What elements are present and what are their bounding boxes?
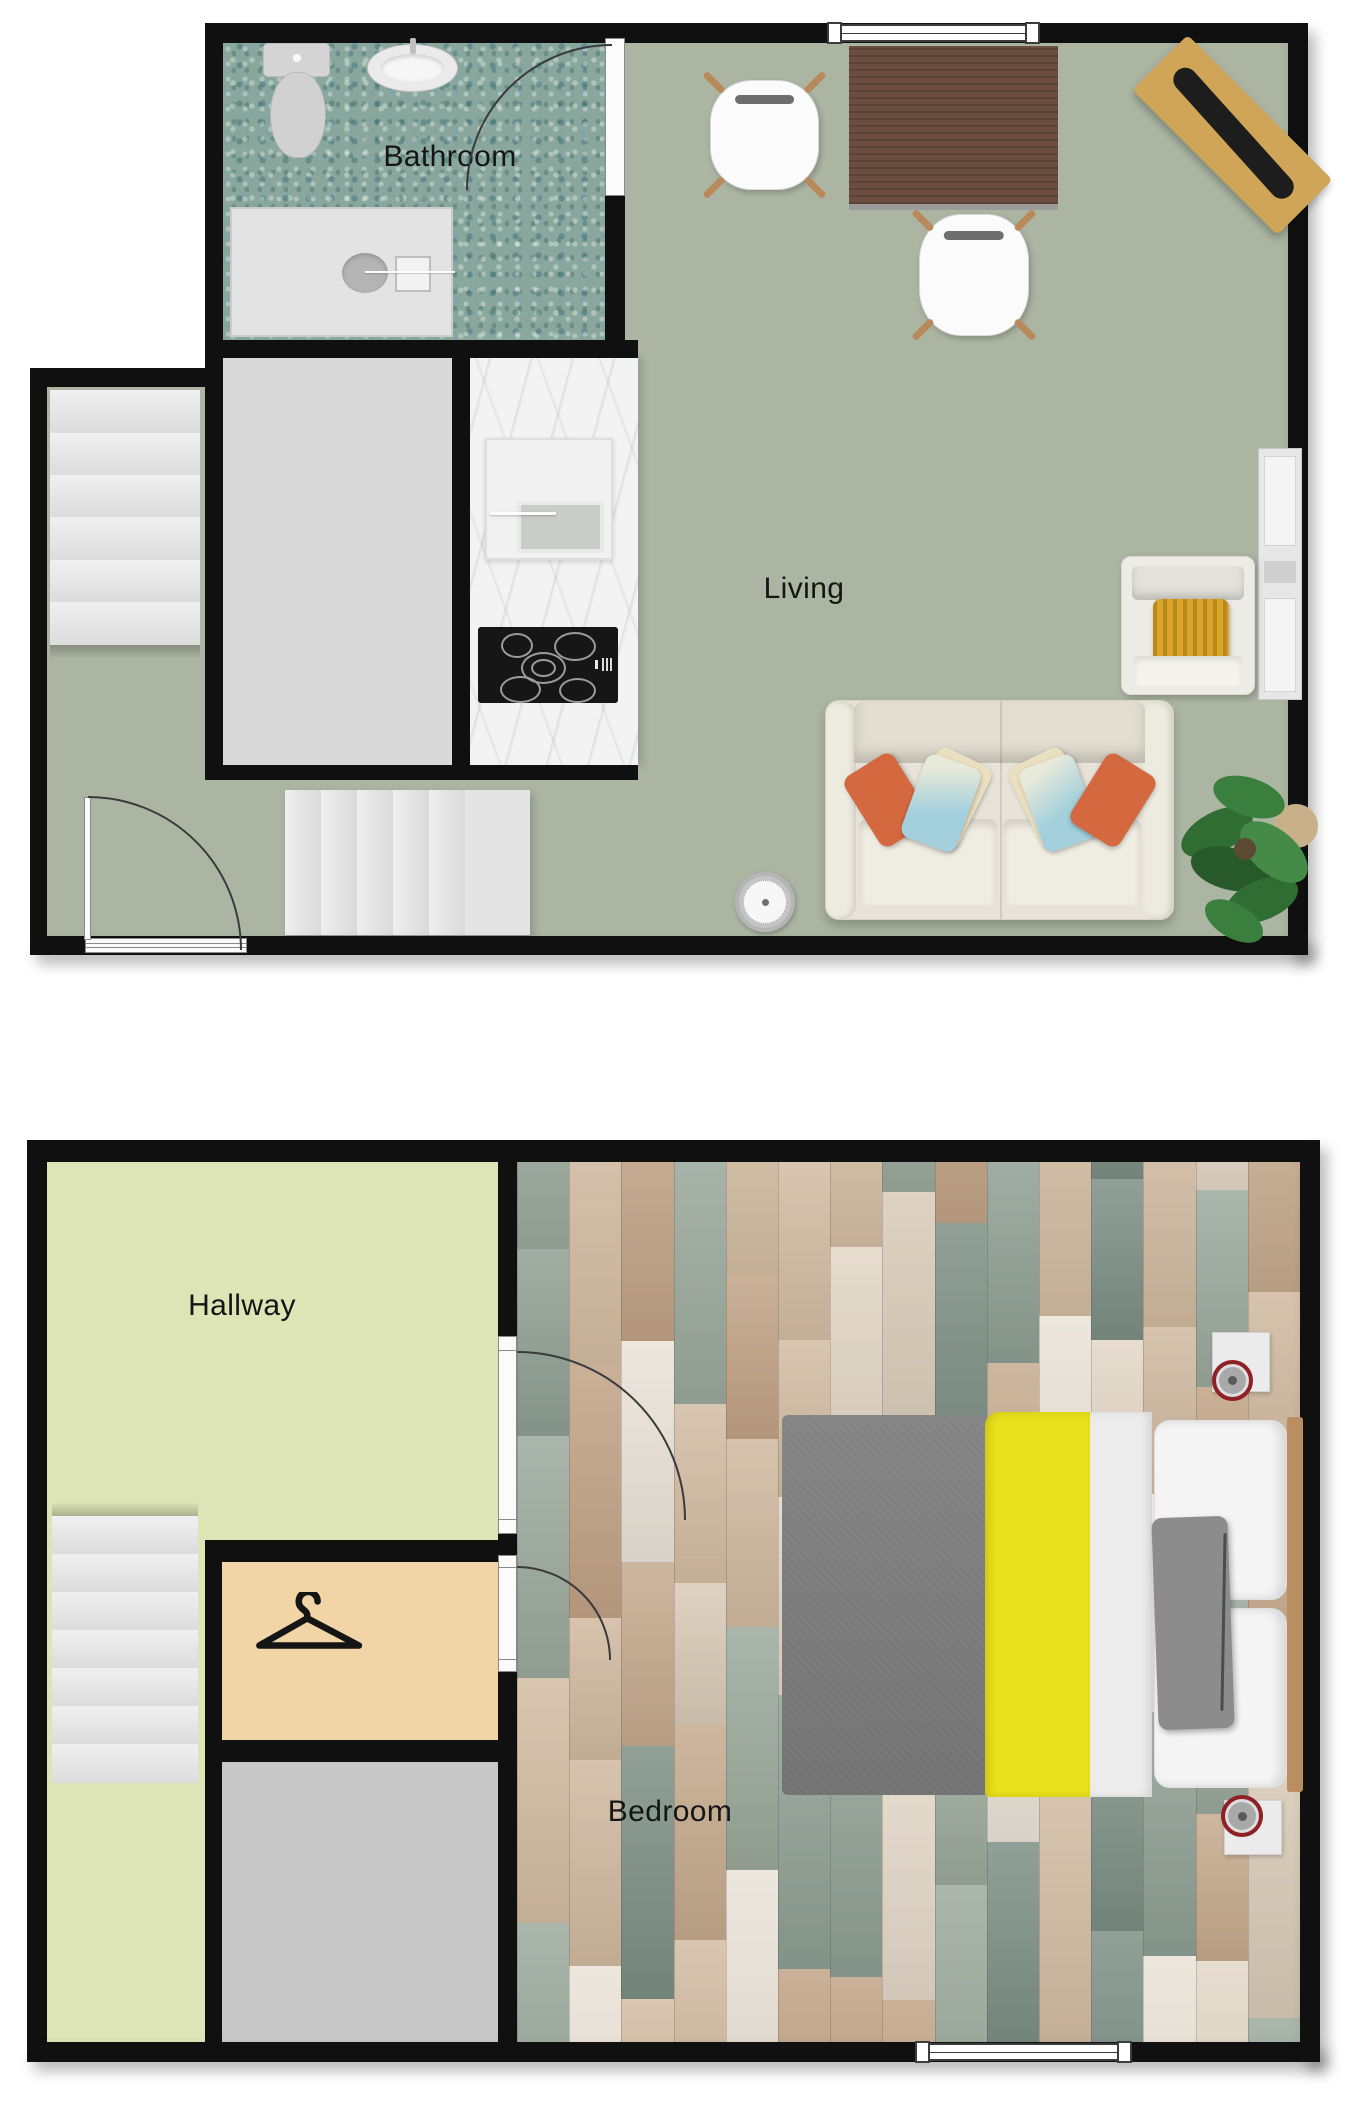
plant-stem xyxy=(1234,838,1256,860)
floor-plank xyxy=(987,1162,1039,1365)
bed-accent-runner xyxy=(985,1412,1090,1797)
floor-plank xyxy=(1196,1162,1248,1192)
floor-plank xyxy=(621,1341,673,1564)
floor-plank xyxy=(1196,1961,1248,2042)
hanger-icon xyxy=(250,1592,372,1654)
floor-plank xyxy=(830,1977,882,2042)
bed-headboard xyxy=(1287,1417,1303,1792)
dining-chair xyxy=(710,80,819,190)
dining-table xyxy=(849,46,1058,210)
stair-tread xyxy=(50,517,200,562)
staircase-lower xyxy=(285,790,530,935)
window-lower xyxy=(915,2043,1132,2061)
floor-plank xyxy=(935,1162,987,1225)
toilet-bowl xyxy=(270,72,326,158)
stair-tread xyxy=(321,790,359,935)
floor-plank xyxy=(1248,2018,1300,2042)
staircase-upper xyxy=(50,390,200,645)
window xyxy=(827,24,1040,42)
oven xyxy=(485,438,613,560)
stair-tread xyxy=(393,790,431,935)
floor-plank xyxy=(621,1999,673,2042)
chair-slot xyxy=(735,95,795,104)
wall-hallway-bedroom xyxy=(498,1162,517,1336)
floor-plank xyxy=(517,1436,569,1680)
floor-plank xyxy=(569,1966,621,2042)
armchair-pillow xyxy=(1153,599,1229,663)
room-label-hallway: Hallway xyxy=(188,1289,296,1323)
floor-plank xyxy=(987,1842,1039,2042)
room-label-bedroom: Bedroom xyxy=(608,1795,733,1829)
stair-tread xyxy=(52,1554,198,1594)
shower-drain xyxy=(342,253,388,293)
stair-shadow xyxy=(52,1502,198,1516)
floor-plank xyxy=(674,1162,726,1406)
floor-plank xyxy=(830,1162,882,1249)
bed xyxy=(782,1412,1303,1797)
hallway-floor xyxy=(47,1162,498,1540)
storage-room-lower-floor xyxy=(222,1762,498,2042)
bathroom-sink xyxy=(367,44,458,92)
stair-tread xyxy=(357,790,395,935)
bed-sheet xyxy=(1090,1412,1152,1797)
lamp-icon xyxy=(1212,1360,1253,1401)
wall-kitchen-divider xyxy=(452,358,470,780)
sofa-seam xyxy=(1000,701,1002,919)
burner xyxy=(500,676,541,703)
floor-plank xyxy=(569,1162,621,1368)
wall-left-lower xyxy=(27,1140,47,2062)
wall-closet-top xyxy=(205,1540,517,1562)
tv-console xyxy=(1258,448,1302,700)
floor-plank xyxy=(882,2000,934,2042)
floor-plank xyxy=(674,1940,726,2042)
floor-plank xyxy=(1248,1162,1300,1294)
wall-mid-vertical xyxy=(205,23,223,780)
floor-plank xyxy=(569,1366,621,1620)
console-band xyxy=(1264,561,1296,583)
cooktop-controls xyxy=(595,660,598,669)
floor-plank xyxy=(621,1162,673,1343)
shower-head xyxy=(395,256,431,292)
sofa xyxy=(825,700,1174,920)
floor-plank xyxy=(726,1439,778,1629)
light-fixture-icon xyxy=(735,872,795,932)
stair-tread xyxy=(429,790,467,935)
floor-plank xyxy=(1039,1781,1091,2042)
floor-plank xyxy=(726,1275,778,1441)
window-cap xyxy=(1117,2041,1132,2063)
stair-tread xyxy=(50,475,200,519)
floor-plank xyxy=(621,1562,673,1748)
floor-plank xyxy=(517,1162,569,1251)
stair-tread xyxy=(50,602,200,645)
armchair xyxy=(1121,556,1255,695)
armchair-back xyxy=(1132,566,1244,600)
room-label-living: Living xyxy=(764,572,845,606)
stair-tread xyxy=(285,790,323,935)
wall-closet-left xyxy=(205,1540,222,2042)
staircase-lower-floor xyxy=(52,1516,198,1783)
stair-shadow xyxy=(50,645,200,659)
lamp-icon xyxy=(1221,1795,1263,1837)
kitchen-counter xyxy=(470,358,638,765)
potted-plant xyxy=(1172,776,1322,944)
stair-tread xyxy=(52,1516,198,1556)
burner xyxy=(501,633,533,658)
exterior-mask xyxy=(0,0,205,368)
floor-plan-canvas: Bathroom Living xyxy=(0,0,1349,2119)
floor-plank xyxy=(726,1627,778,1872)
window-cap xyxy=(915,2041,930,2063)
floor-plank xyxy=(935,1885,987,2042)
stair-tread xyxy=(52,1706,198,1746)
stair-tread xyxy=(52,1744,198,1783)
floor-plank xyxy=(674,1404,726,1585)
wall-top xyxy=(207,23,1308,43)
floor-plank xyxy=(726,1870,778,2042)
wall-left xyxy=(30,368,47,936)
floor-plank xyxy=(778,1969,830,2042)
stair-tread xyxy=(52,1630,198,1670)
window-cap xyxy=(1025,22,1040,44)
window-cap xyxy=(827,22,842,44)
floor-plank xyxy=(569,1618,621,1762)
floor-plank xyxy=(517,1923,569,2042)
bed-accent-pillow xyxy=(1151,1516,1234,1731)
wall-kitchen-bottom xyxy=(205,765,638,780)
dining-chair xyxy=(919,214,1029,336)
floor-plank xyxy=(726,1162,778,1277)
bed-duvet xyxy=(782,1415,985,1795)
floor-plank xyxy=(882,1762,934,2002)
shower-hose xyxy=(365,271,455,273)
floor-plank xyxy=(674,1725,726,1942)
stair-tread xyxy=(52,1668,198,1708)
stair-tread xyxy=(465,790,530,935)
floor-plank xyxy=(1091,1179,1143,1342)
entry-door-leaf xyxy=(84,797,91,940)
wall-top-lower xyxy=(27,1140,1320,1162)
stair-tread xyxy=(50,390,200,435)
floor-plank xyxy=(1039,1162,1091,1318)
floor-plank xyxy=(674,1583,726,1727)
sofa-armrest xyxy=(826,701,856,919)
wall-closet-bottom xyxy=(205,1740,517,1762)
closet-bedroom-door xyxy=(498,1555,517,1672)
floor-plank xyxy=(517,1249,569,1438)
floor-plank xyxy=(569,1760,621,1968)
entry-door-threshold xyxy=(85,938,247,953)
cooktop-controls xyxy=(602,658,612,671)
wall-bathroom-bottom xyxy=(205,340,638,358)
room-label-bathroom: Bathroom xyxy=(383,140,516,174)
shower-tray xyxy=(230,207,453,337)
chair-slot xyxy=(944,231,1004,240)
floor-plank xyxy=(1143,1956,1195,2042)
floor-plank xyxy=(882,1162,934,1194)
bathroom-door xyxy=(605,38,625,196)
armchair-seat xyxy=(1134,656,1242,686)
sofa-armrest xyxy=(1143,701,1173,919)
floor-plank xyxy=(778,1162,830,1342)
wall-closet-bedroom xyxy=(498,1662,517,2042)
floor-plank xyxy=(1143,1162,1195,1329)
floor-plank xyxy=(1091,1931,1143,2042)
burner xyxy=(559,678,596,703)
floor-plank xyxy=(621,1746,673,2001)
stair-tread xyxy=(50,433,200,477)
stair-tread xyxy=(50,560,200,604)
storage-room-floor xyxy=(223,358,452,765)
hallway-bedroom-door xyxy=(498,1336,517,1534)
burner-inner-ring xyxy=(531,659,556,677)
stair-tread xyxy=(52,1592,198,1632)
wall-stairs-top xyxy=(30,368,220,387)
wall-right-lower xyxy=(1300,1140,1320,2062)
cooktop xyxy=(478,627,618,703)
floor-plank xyxy=(517,1678,569,1925)
